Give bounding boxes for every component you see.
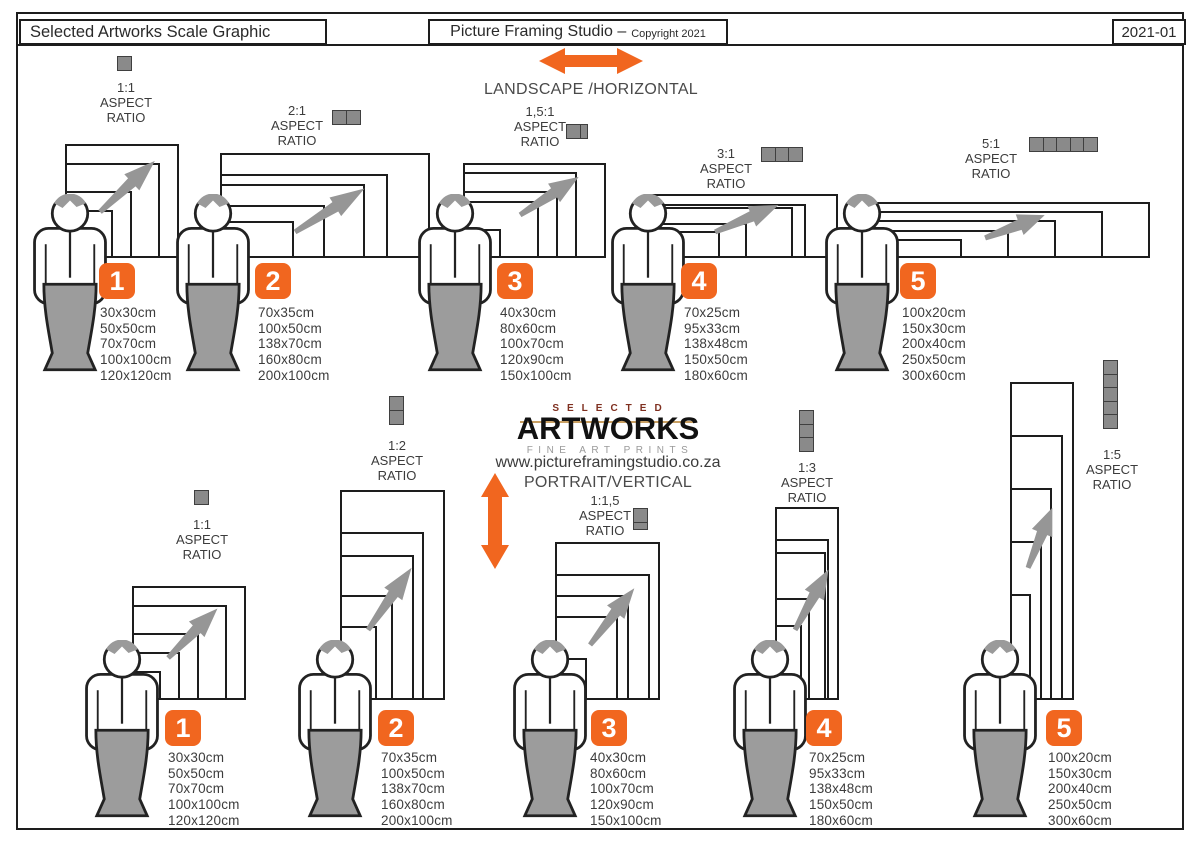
size-item: 138x48cm — [684, 336, 748, 352]
size-item: 100x70cm — [500, 336, 572, 352]
size-item: 160x80cm — [258, 352, 330, 368]
size-item: 120x120cm — [168, 813, 240, 829]
page-title-text: Selected Artworks Scale Graphic — [30, 23, 270, 42]
aspect-ratio-label: 1:1,5ASPECTRATIO — [579, 493, 631, 538]
brand-logo: SELECTED ARTWORKS FINE ART PRINTS — [488, 403, 728, 456]
ratio-unit-icon — [389, 396, 404, 425]
unit-square — [799, 437, 814, 452]
group-number-badge: 5 — [900, 263, 936, 299]
group-number-badge: 5 — [1046, 710, 1082, 746]
size-item: 200x40cm — [902, 336, 966, 352]
ratio-value: 1:1,5 — [579, 493, 631, 508]
size-item: 40x30cm — [590, 750, 662, 766]
unit-square — [389, 410, 404, 425]
size-item: 100x20cm — [902, 305, 966, 321]
size-list: 40x30cm80x60cm100x70cm120x90cm150x100cm — [590, 750, 662, 829]
size-item: 100x70cm — [590, 781, 662, 797]
ratio-value: 1:1 — [100, 80, 152, 95]
size-item: 70x25cm — [684, 305, 748, 321]
size-item: 100x100cm — [168, 797, 240, 813]
size-item: 50x50cm — [168, 766, 240, 782]
size-item: 95x33cm — [684, 321, 748, 337]
size-item: 250x50cm — [1048, 797, 1112, 813]
aspect-word: ASPECT — [371, 453, 423, 468]
size-list: 70x25cm95x33cm138x48cm150x50cm180x60cm — [684, 305, 748, 384]
ratio-unit-icon — [1103, 360, 1118, 429]
ratio-unit-icon — [332, 110, 361, 125]
group-number-badge: 1 — [165, 710, 201, 746]
aspect-word: RATIO — [965, 166, 1017, 181]
aspect-ratio-label: 2:1ASPECTRATIO — [271, 103, 323, 148]
ratio-value: 1:2 — [371, 438, 423, 453]
group-number-badge: 4 — [806, 710, 842, 746]
ratio-value: 1:3 — [781, 460, 833, 475]
person-figure — [606, 194, 690, 380]
person-figure — [728, 640, 812, 826]
aspect-word: RATIO — [781, 490, 833, 505]
size-item: 50x50cm — [100, 321, 172, 337]
group-number-badge: 2 — [255, 263, 291, 299]
ratio-value: 2:1 — [271, 103, 323, 118]
size-item: 180x60cm — [684, 368, 748, 384]
copyright-note: Copyright 2021 — [631, 25, 706, 40]
size-item: 95x33cm — [809, 766, 873, 782]
ratio-unit-icon — [117, 56, 132, 71]
aspect-word: RATIO — [271, 133, 323, 148]
ratio-unit-icon — [566, 124, 588, 139]
size-item: 150x50cm — [684, 352, 748, 368]
size-item: 150x100cm — [590, 813, 662, 829]
size-item: 70x70cm — [100, 336, 172, 352]
aspect-word: ASPECT — [100, 95, 152, 110]
group-number-badge: 3 — [591, 710, 627, 746]
size-item: 150x30cm — [1048, 766, 1112, 782]
size-list: 100x20cm150x30cm200x40cm250x50cm300x60cm — [1048, 750, 1112, 829]
aspect-ratio-label: 1:1ASPECTRATIO — [176, 517, 228, 562]
size-item: 138x48cm — [809, 781, 873, 797]
person-figure — [820, 194, 904, 380]
unit-square — [346, 110, 361, 125]
size-item: 138x70cm — [381, 781, 453, 797]
aspect-word: ASPECT — [514, 119, 566, 134]
landscape-direction-arrow-icon — [538, 46, 644, 76]
ratio-unit-icon — [633, 508, 648, 530]
size-list: 30x30cm50x50cm70x70cm100x100cm120x120cm — [100, 305, 172, 384]
doc-ref-box: 2021-01 — [1112, 19, 1186, 45]
aspect-word: ASPECT — [781, 475, 833, 490]
person-figure — [508, 640, 592, 826]
brand-artworks-text: ARTWORKS — [488, 414, 728, 445]
aspect-ratio-label: 5:1ASPECTRATIO — [965, 136, 1017, 181]
aspect-word: RATIO — [176, 547, 228, 562]
size-list: 70x35cm100x50cm138x70cm160x80cm200x100cm — [381, 750, 453, 829]
aspect-ratio-label: 1,5:1ASPECTRATIO — [514, 104, 566, 149]
ratio-value: 1:1 — [176, 517, 228, 532]
size-item: 70x35cm — [258, 305, 330, 321]
ratio-value: 3:1 — [700, 146, 752, 161]
size-item: 30x30cm — [100, 305, 172, 321]
aspect-word: RATIO — [514, 134, 566, 149]
group-number-badge: 2 — [378, 710, 414, 746]
person-figure — [413, 194, 497, 380]
aspect-word: RATIO — [1086, 477, 1138, 492]
unit-square — [788, 147, 803, 162]
ratio-value: 5:1 — [965, 136, 1017, 151]
size-item: 120x120cm — [100, 368, 172, 384]
size-item: 200x40cm — [1048, 781, 1112, 797]
size-item: 160x80cm — [381, 797, 453, 813]
studio-title-text: Picture Framing Studio – — [450, 23, 626, 41]
aspect-ratio-label: 3:1ASPECTRATIO — [700, 146, 752, 191]
size-item: 250x50cm — [902, 352, 966, 368]
aspect-word: ASPECT — [1086, 462, 1138, 477]
portrait-direction-arrow-icon — [478, 473, 512, 569]
size-item: 200x100cm — [381, 813, 453, 829]
ratio-value: 1,5:1 — [514, 104, 566, 119]
studio-title-box: Picture Framing Studio – Copyright 2021 — [428, 19, 728, 45]
size-item: 70x35cm — [381, 750, 453, 766]
person-figure — [171, 194, 255, 380]
unit-square — [1083, 137, 1098, 152]
group-number-badge: 4 — [681, 263, 717, 299]
person-figure — [958, 640, 1042, 826]
unit-square — [1103, 414, 1118, 429]
page-title: Selected Artworks Scale Graphic — [19, 19, 327, 45]
size-item: 138x70cm — [258, 336, 330, 352]
size-item: 100x100cm — [100, 352, 172, 368]
size-item: 150x30cm — [902, 321, 966, 337]
size-item: 150x100cm — [500, 368, 572, 384]
size-item: 300x60cm — [1048, 813, 1112, 829]
aspect-ratio-label: 1:1ASPECTRATIO — [100, 80, 152, 125]
aspect-word: ASPECT — [700, 161, 752, 176]
ratio-unit-icon — [194, 490, 209, 505]
unit-square-half — [633, 522, 648, 530]
ratio-value: 1:5 — [1086, 447, 1138, 462]
size-item: 40x30cm — [500, 305, 572, 321]
size-item: 70x70cm — [168, 781, 240, 797]
aspect-ratio-label: 1:2ASPECTRATIO — [371, 438, 423, 483]
group-number-badge: 3 — [497, 263, 533, 299]
person-figure — [80, 640, 164, 826]
aspect-word: RATIO — [579, 523, 631, 538]
size-list: 40x30cm80x60cm100x70cm120x90cm150x100cm — [500, 305, 572, 384]
size-item: 100x50cm — [381, 766, 453, 782]
aspect-word: RATIO — [100, 110, 152, 125]
size-list: 70x35cm100x50cm138x70cm160x80cm200x100cm — [258, 305, 330, 384]
group-number-badge: 1 — [99, 263, 135, 299]
size-item: 80x60cm — [500, 321, 572, 337]
aspect-word: RATIO — [371, 468, 423, 483]
size-item: 150x50cm — [809, 797, 873, 813]
size-list: 30x30cm50x50cm70x70cm100x100cm120x120cm — [168, 750, 240, 829]
size-item: 120x90cm — [590, 797, 662, 813]
size-item: 100x50cm — [258, 321, 330, 337]
unit-square — [194, 490, 209, 505]
website-url: www.pictureframingstudio.co.za — [470, 454, 746, 472]
size-item: 200x100cm — [258, 368, 330, 384]
ratio-unit-icon — [799, 410, 814, 452]
scale-graphic-canvas: Selected Artworks Scale Graphic Picture … — [0, 0, 1200, 842]
size-item: 70x25cm — [809, 750, 873, 766]
ratio-unit-icon — [761, 147, 803, 162]
aspect-ratio-label: 1:5ASPECTRATIO — [1086, 447, 1138, 492]
size-item: 120x90cm — [500, 352, 572, 368]
aspect-word: ASPECT — [271, 118, 323, 133]
size-item: 30x30cm — [168, 750, 240, 766]
size-list: 100x20cm150x30cm200x40cm250x50cm300x60cm — [902, 305, 966, 384]
size-list: 70x25cm95x33cm138x48cm150x50cm180x60cm — [809, 750, 873, 829]
aspect-word: ASPECT — [965, 151, 1017, 166]
unit-square-half — [580, 124, 588, 139]
aspect-word: RATIO — [700, 176, 752, 191]
size-item: 300x60cm — [902, 368, 966, 384]
unit-square — [117, 56, 132, 71]
person-figure — [293, 640, 377, 826]
doc-ref-text: 2021-01 — [1121, 24, 1176, 41]
ratio-unit-icon — [1029, 137, 1098, 152]
aspect-word: ASPECT — [579, 508, 631, 523]
aspect-ratio-label: 1:3ASPECTRATIO — [781, 460, 833, 505]
aspect-word: ASPECT — [176, 532, 228, 547]
size-item: 100x20cm — [1048, 750, 1112, 766]
size-item: 80x60cm — [590, 766, 662, 782]
landscape-section-label: LANDSCAPE /HORIZONTAL — [460, 81, 722, 99]
size-item: 180x60cm — [809, 813, 873, 829]
